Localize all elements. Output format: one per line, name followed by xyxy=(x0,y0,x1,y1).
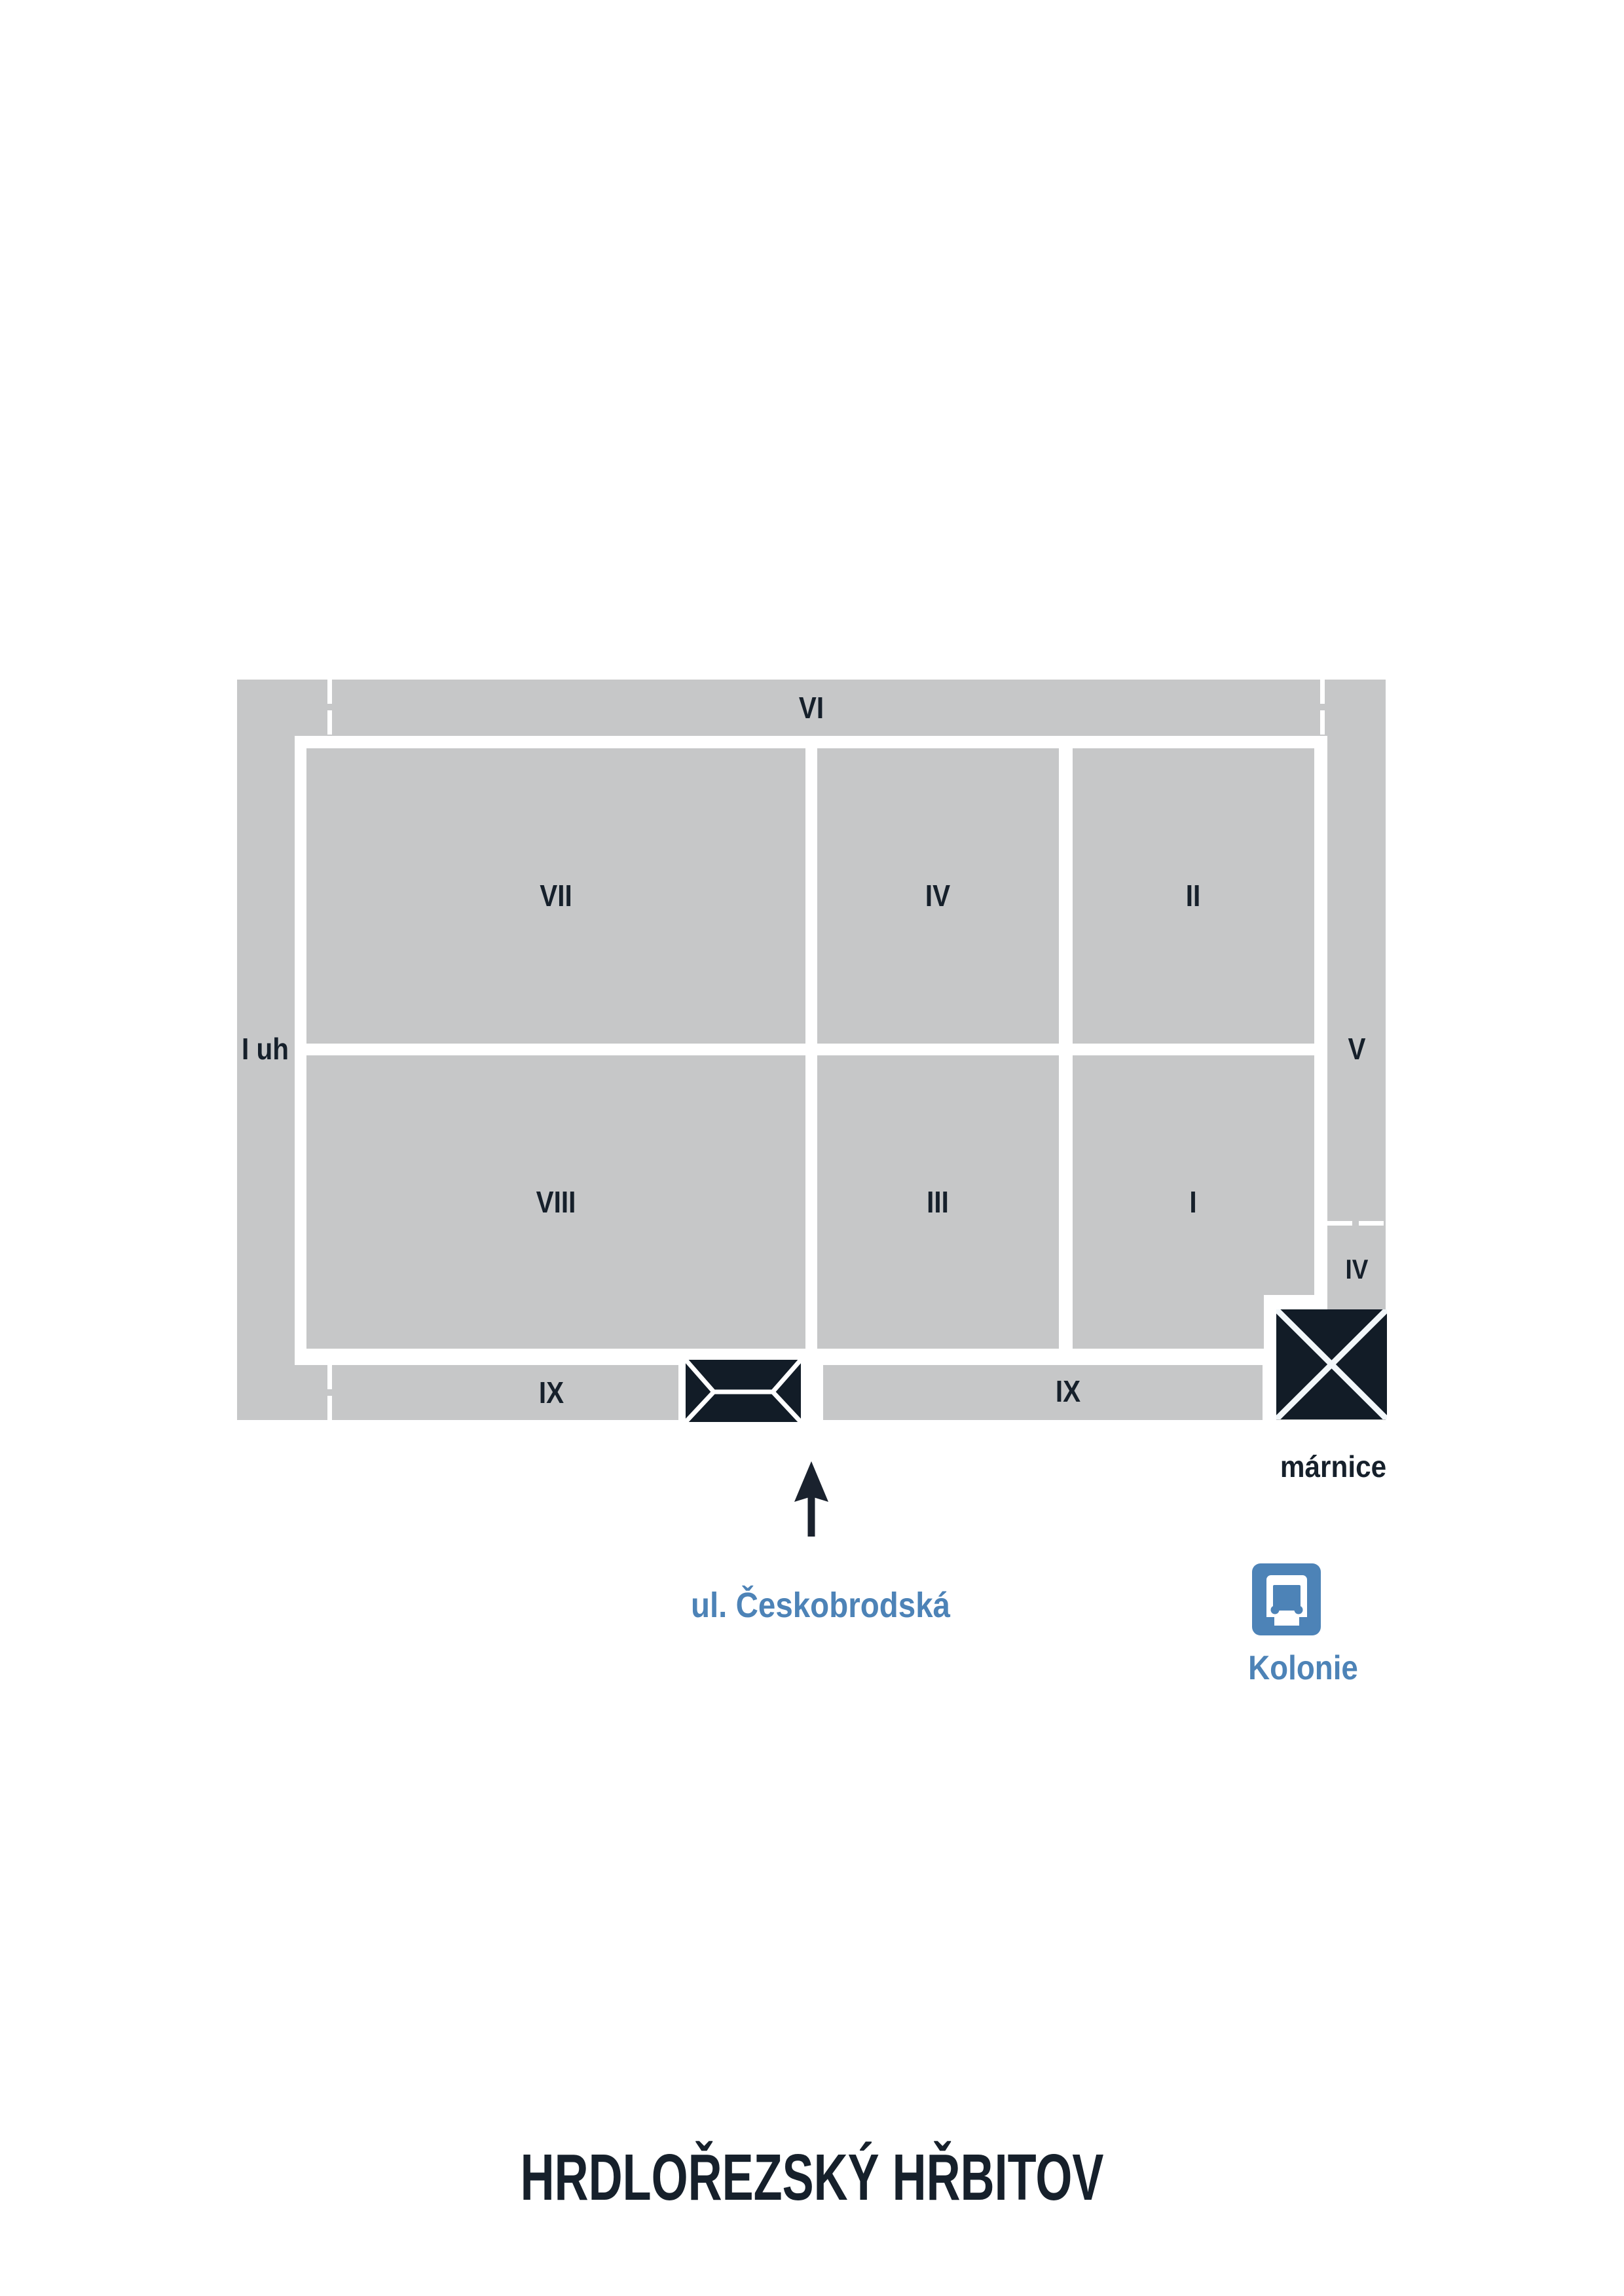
perimeter-label-iv: IV xyxy=(1346,1256,1369,1283)
street-label: ul. Českobrodská xyxy=(691,1588,950,1623)
perimeter-label-i-uh: I uh xyxy=(242,1034,289,1064)
dashed-divider xyxy=(327,1365,332,1420)
cemetery-plan-page: VII IV II VIII III I VI I uh V IV IX IX … xyxy=(0,0,1624,2296)
perimeter-band-right xyxy=(1327,680,1386,1311)
up-arrow-icon xyxy=(794,1461,828,1537)
perimeter-label-ix-left: IX xyxy=(539,1377,564,1408)
morgue-label: márnice xyxy=(1280,1451,1386,1482)
dashed-divider xyxy=(1320,680,1325,736)
block-label-iv: IV xyxy=(925,881,950,911)
perimeter-label-ix-right: IX xyxy=(1056,1376,1080,1406)
dashed-divider xyxy=(1327,1221,1386,1226)
perimeter-band-bottom xyxy=(295,1365,1386,1420)
dashed-divider xyxy=(327,680,332,736)
band-gap xyxy=(1263,1364,1276,1421)
colony-label: Kolonie xyxy=(1248,1651,1358,1685)
block-label-viii: VIII xyxy=(536,1187,576,1217)
block-label-i: I xyxy=(1189,1187,1196,1217)
perimeter-label-v: V xyxy=(1348,1034,1365,1064)
envelope-gate-icon xyxy=(686,1360,801,1422)
page-title: HRDLOŘEZSKÝ HŘBITOV xyxy=(521,2145,1104,2210)
block-label-iii: III xyxy=(927,1187,949,1217)
bus-stop-icon xyxy=(1252,1563,1321,1635)
band-gap xyxy=(801,1364,823,1421)
block-label-vii: VII xyxy=(540,881,572,911)
morgue-x-icon xyxy=(1276,1309,1387,1419)
perimeter-label-vi: VI xyxy=(799,693,824,723)
block-label-ii: II xyxy=(1186,881,1200,911)
